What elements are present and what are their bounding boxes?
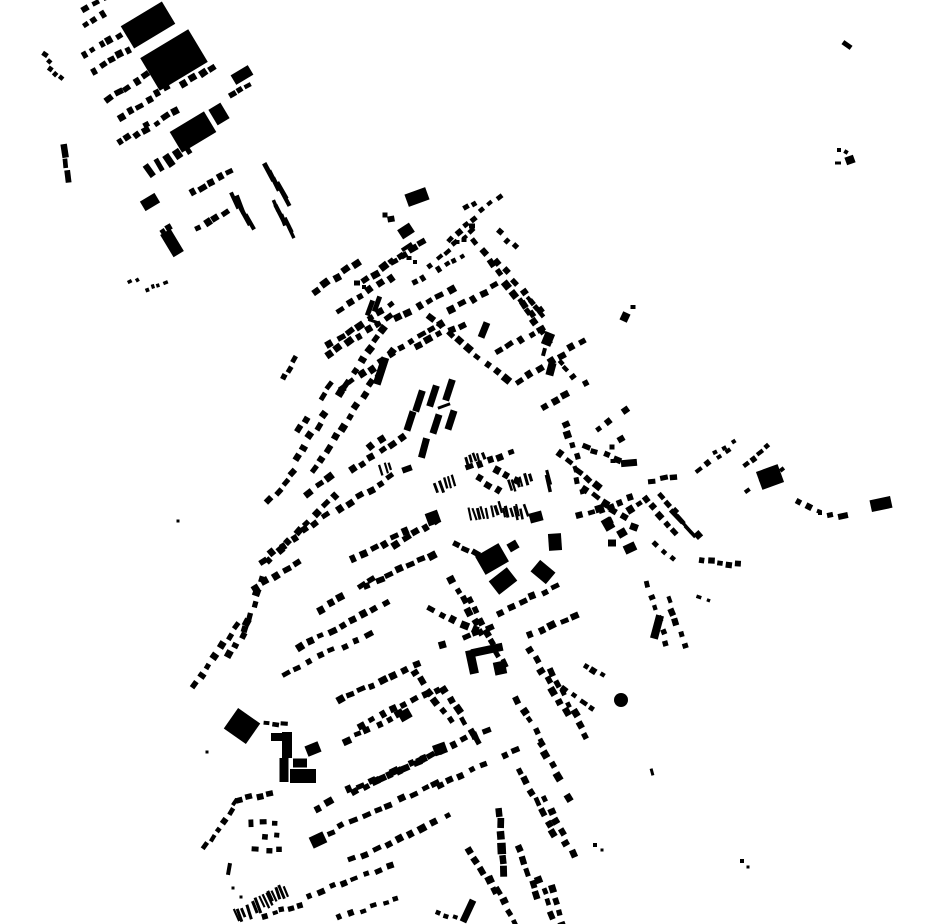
building-footprint: [397, 344, 405, 352]
building-footprint: [245, 904, 252, 919]
building-footprint: [540, 749, 550, 760]
building-footprint: [324, 444, 334, 454]
building-footprint: [477, 866, 487, 876]
building-footprint: [304, 430, 314, 440]
building-footprint: [375, 278, 385, 288]
building-footprint: [629, 522, 639, 531]
building-footprint: [121, 1, 176, 48]
building-footprint: [362, 811, 372, 819]
building-footprint: [660, 474, 669, 481]
building-footprint: [506, 540, 519, 553]
building-footprint: [356, 293, 364, 301]
building-footprint: [162, 153, 175, 168]
building-footprint: [331, 432, 340, 441]
building-footprint: [292, 558, 302, 567]
building-footprint: [52, 71, 59, 78]
building-footprint: [364, 344, 375, 355]
building-footprint: [593, 843, 597, 847]
building-footprint: [412, 389, 425, 412]
building-footprint: [102, 0, 110, 1]
building-footprint: [520, 775, 529, 785]
building-footprint: [286, 365, 294, 373]
building-footprint: [666, 596, 672, 604]
building-footprint: [315, 480, 325, 489]
building-footprint: [372, 845, 382, 853]
building-footprint: [570, 612, 580, 621]
building-footprint: [271, 733, 283, 741]
building-footprint: [358, 609, 368, 619]
building-footprint: [425, 510, 442, 527]
building-footprint: [747, 866, 750, 869]
building-footprint: [475, 473, 484, 482]
building-footprint: [345, 326, 355, 336]
building-footprint: [411, 278, 418, 285]
building-footprint: [412, 660, 421, 669]
building-footprint: [351, 259, 362, 270]
building-footprint: [740, 859, 744, 863]
building-footprint: [394, 564, 404, 573]
building-footprint: [64, 170, 71, 183]
building-footprint: [383, 900, 390, 906]
building-footprint: [468, 454, 473, 463]
building-footprint: [620, 512, 629, 521]
building-footprint: [224, 708, 260, 744]
building-footprint: [143, 163, 156, 178]
building-footprint: [99, 40, 106, 48]
building-footprint: [575, 511, 583, 519]
building-footprint: [292, 665, 301, 673]
building-footprint: [445, 776, 454, 785]
building-footprint: [170, 111, 217, 152]
building-footprint: [525, 646, 534, 655]
building-footprint: [485, 508, 489, 519]
building-footprint: [366, 378, 376, 388]
building-footprint: [383, 312, 393, 322]
building-footprint: [335, 694, 345, 704]
building-footprint: [444, 812, 451, 819]
building-footprint: [405, 560, 415, 568]
building-footprint: [536, 667, 546, 676]
building-footprint: [312, 508, 322, 518]
building-footprint: [319, 392, 328, 402]
building-footprint: [663, 500, 672, 509]
building-footprint: [274, 832, 279, 837]
building-footprint: [756, 464, 784, 490]
building-footprint: [670, 474, 678, 480]
building-footprint: [583, 663, 590, 670]
building-footprint: [468, 766, 475, 773]
building-footprint: [538, 807, 547, 817]
building-footprint: [107, 55, 116, 63]
building-footprint: [231, 65, 254, 85]
building-footprint: [476, 460, 484, 468]
building-footprint: [458, 322, 467, 331]
building-footprint: [305, 658, 313, 666]
building-footprint: [367, 486, 377, 495]
building-footprint: [349, 554, 357, 563]
building-footprint: [437, 402, 450, 409]
building-footprint: [194, 225, 201, 232]
building-footprint: [145, 95, 154, 104]
building-footprint: [541, 589, 549, 597]
building-footprint: [243, 82, 251, 89]
map-canvas: [0, 0, 930, 924]
building-footprint: [209, 834, 216, 843]
building-footprint: [623, 541, 638, 554]
building-footprint: [588, 705, 595, 712]
building-footprint: [556, 909, 563, 916]
building-footprint: [837, 148, 841, 152]
building-footprint: [660, 628, 667, 635]
building-footprint: [462, 203, 470, 210]
building-footprint: [226, 632, 234, 641]
building-footprint: [461, 546, 470, 554]
building-footprint: [538, 626, 547, 635]
building-footprint: [625, 504, 635, 514]
building-footprint: [459, 716, 467, 726]
building-footprint: [696, 594, 702, 599]
building-footprint: [616, 499, 624, 507]
building-footprint: [367, 716, 375, 723]
building-footprint: [282, 732, 292, 758]
building-footprint: [364, 324, 373, 333]
building-footprint: [648, 502, 657, 511]
building-footprint: [495, 808, 502, 817]
building-footprint: [467, 507, 472, 520]
building-footprint: [516, 767, 524, 775]
building-footprint: [569, 373, 577, 381]
building-footprint: [603, 451, 611, 458]
building-footprint: [99, 60, 108, 69]
building-footprint: [552, 897, 560, 905]
building-footprint: [316, 888, 326, 897]
building-footprint: [122, 133, 131, 142]
building-footprint: [385, 472, 394, 480]
building-footprint: [321, 511, 331, 520]
building-footprint: [574, 477, 580, 485]
building-footprint: [417, 675, 427, 685]
building-footprint: [460, 899, 476, 924]
building-footprint: [382, 599, 391, 607]
building-footprint: [335, 592, 345, 602]
building-footprint: [339, 621, 348, 630]
building-footprint: [216, 172, 225, 181]
building-footprint: [505, 908, 513, 917]
building-footprint: [419, 274, 426, 282]
building-footprint: [407, 256, 412, 260]
building-footprint: [843, 149, 848, 154]
building-footprint: [426, 605, 435, 613]
building-footprint: [299, 444, 308, 453]
building-footprint: [402, 308, 412, 318]
building-footprint: [383, 213, 388, 218]
building-footprint: [478, 206, 485, 213]
building-footprint: [457, 299, 467, 308]
building-footprint: [374, 867, 383, 875]
building-footprint: [515, 377, 524, 386]
building-footprint: [452, 914, 458, 919]
building-footprint: [426, 384, 439, 407]
building-footprint: [446, 304, 456, 314]
building-footprint: [416, 823, 427, 834]
building-footprint: [670, 527, 679, 536]
building-footprint: [409, 791, 419, 799]
building-footprint: [529, 317, 539, 327]
building-footprint: [252, 601, 259, 609]
building-footprint: [354, 730, 362, 737]
building-footprint: [725, 562, 732, 569]
building-footprint: [274, 487, 283, 496]
building-footprint: [531, 560, 556, 584]
building-footprint: [228, 90, 237, 99]
building-footprint: [520, 288, 529, 297]
building-footprint: [384, 571, 394, 579]
building-footprint: [369, 605, 378, 614]
building-footprint: [311, 287, 321, 297]
building-footprint: [290, 355, 298, 364]
building-footprint: [201, 841, 209, 850]
building-footprint: [132, 130, 141, 139]
building-footprint: [393, 312, 403, 322]
building-footprint: [407, 338, 415, 345]
building-footprint: [731, 439, 737, 445]
building-footprint: [401, 464, 412, 473]
building-footprint: [384, 840, 393, 849]
building-footprint: [363, 870, 370, 876]
building-footprint: [479, 761, 488, 769]
building-footprint: [558, 359, 565, 366]
building-footprint: [465, 846, 474, 855]
building-footprint: [390, 540, 400, 550]
building-footprint: [648, 594, 655, 601]
building-footprint: [466, 596, 474, 604]
building-footprint: [293, 759, 307, 768]
building-footprint: [330, 491, 339, 500]
building-footprint: [356, 685, 366, 693]
building-footprint: [47, 66, 54, 73]
building-footprint: [553, 679, 561, 688]
building-footprint: [335, 913, 342, 920]
building-footprint: [484, 361, 492, 369]
building-footprint: [232, 621, 241, 630]
building-footprint: [380, 540, 389, 550]
building-footprint: [329, 882, 336, 889]
building-footprint: [621, 459, 638, 467]
building-footprint: [446, 575, 456, 585]
building-footprint: [397, 433, 407, 443]
building-footprint: [566, 342, 575, 352]
building-footprint: [306, 893, 313, 900]
building-footprint: [413, 341, 423, 350]
building-footprint: [434, 291, 444, 300]
building-footprint: [465, 463, 474, 471]
building-footprint: [547, 667, 556, 677]
building-footprint: [354, 281, 360, 286]
building-footprint: [82, 21, 89, 28]
circular-building-footprint: [614, 693, 628, 707]
building-footprint: [378, 445, 387, 453]
building-footprint: [540, 403, 549, 411]
building-footprint: [80, 4, 89, 13]
building-footprint: [126, 106, 134, 115]
building-footprint: [170, 106, 180, 116]
building-footprint: [262, 834, 268, 840]
building-footprint: [608, 540, 616, 547]
building-footprint: [744, 487, 751, 494]
building-footprint: [415, 301, 424, 310]
building-footprint: [267, 547, 277, 557]
building-footprint: [604, 417, 613, 426]
building-footprint: [642, 495, 651, 504]
building-footprint: [644, 580, 650, 588]
building-footprint: [232, 887, 235, 890]
building-footprint: [534, 797, 542, 807]
building-footprint: [462, 221, 470, 228]
building-footprint: [518, 597, 528, 605]
building-footprint: [81, 51, 89, 60]
building-footprint: [386, 862, 395, 870]
building-footprint: [280, 721, 287, 726]
building-footprint: [571, 692, 578, 699]
building-footprint: [378, 675, 389, 685]
building-footprint: [404, 410, 417, 431]
building-footprint: [276, 847, 282, 852]
building-footprint: [533, 727, 541, 735]
building-footprint: [410, 527, 420, 536]
building-footprint: [487, 455, 495, 463]
building-footprint: [378, 465, 384, 476]
building-footprint: [551, 396, 561, 406]
building-footprint: [438, 480, 445, 493]
building-footprint: [841, 40, 852, 50]
building-footprint: [278, 188, 291, 207]
building-footprint: [316, 632, 324, 639]
building-footprint: [442, 378, 455, 401]
building-footprint: [220, 817, 229, 826]
building-footprint: [104, 35, 114, 45]
building-footprint: [304, 741, 321, 756]
building-footprint: [528, 473, 533, 481]
building-footprint: [145, 288, 150, 293]
building-footprint: [682, 642, 689, 648]
building-footprint: [335, 306, 345, 315]
building-footprint: [306, 636, 315, 645]
building-footprint: [377, 434, 387, 444]
building-footprint: [387, 215, 395, 222]
building-footprint: [655, 511, 665, 521]
building-footprint: [667, 608, 676, 617]
building-footprint: [447, 696, 456, 705]
building-footprint: [455, 228, 464, 237]
building-footprint: [208, 103, 229, 126]
building-footprint: [206, 178, 215, 187]
building-footprint: [245, 793, 253, 800]
building-footprint: [548, 884, 557, 894]
building-footprint: [454, 335, 464, 345]
building-footprint: [153, 120, 160, 127]
building-footprint: [115, 32, 123, 40]
building-footprint: [494, 485, 502, 494]
building-footprint: [469, 295, 478, 304]
building-footprint: [204, 663, 211, 670]
building-footprint: [386, 274, 395, 284]
building-footprint: [282, 565, 292, 574]
building-footprint: [340, 264, 351, 274]
building-footprint: [127, 279, 133, 284]
building-footprint: [260, 819, 267, 824]
building-footprint: [404, 187, 429, 207]
building-footprint: [281, 669, 291, 677]
building-footprint: [716, 454, 722, 460]
building-footprint: [499, 897, 508, 906]
building-footprint: [443, 913, 449, 919]
building-footprint: [46, 58, 52, 64]
building-footprint: [310, 464, 319, 474]
building-footprint: [508, 449, 515, 456]
building-footprint: [347, 909, 355, 917]
building-footprint: [433, 687, 441, 695]
building-footprint: [387, 462, 392, 470]
building-footprint: [533, 655, 542, 664]
building-footprint: [156, 283, 160, 288]
building-footprint: [376, 721, 384, 729]
building-footprint: [489, 567, 518, 595]
building-footprint: [327, 829, 336, 837]
building-footprint: [463, 343, 474, 354]
building-footprint: [374, 806, 383, 814]
building-footprint: [511, 919, 518, 924]
building-footprint: [549, 761, 557, 769]
building-footprint: [462, 633, 472, 641]
building-footprint: [795, 498, 802, 506]
building-footprint: [497, 843, 506, 855]
building-footprint: [579, 698, 588, 706]
building-footprint: [416, 238, 426, 247]
building-footprint: [504, 340, 514, 349]
building-footprint: [358, 355, 367, 364]
building-footprint: [621, 406, 630, 415]
building-footprint: [221, 208, 231, 217]
building-footprint: [470, 856, 480, 866]
building-footprint: [553, 771, 564, 782]
building-footprint: [386, 716, 394, 724]
building-footprint: [352, 637, 359, 645]
building-footprint: [364, 630, 374, 639]
building-footprint: [58, 74, 65, 81]
building-footprint: [63, 158, 69, 168]
building-footprint: [569, 849, 578, 859]
building-footprint: [569, 442, 575, 449]
building-footprint: [272, 821, 278, 826]
building-footprint: [326, 598, 335, 607]
building-footprint: [278, 906, 284, 912]
building-footprint: [117, 112, 127, 122]
building-footprint: [215, 827, 222, 834]
building-footprint: [581, 732, 589, 740]
building-footprint: [375, 576, 385, 585]
building-footprint: [387, 440, 397, 450]
building-footprint: [763, 443, 770, 450]
building-footprint: [447, 284, 458, 294]
building-footprint: [378, 261, 389, 272]
building-footprint: [135, 102, 145, 110]
building-footprint: [263, 721, 269, 725]
building-footprint: [444, 260, 451, 267]
building-footprint: [287, 905, 294, 912]
building-footprint: [376, 480, 384, 488]
building-footprint: [360, 275, 369, 284]
building-footprint: [427, 325, 436, 333]
